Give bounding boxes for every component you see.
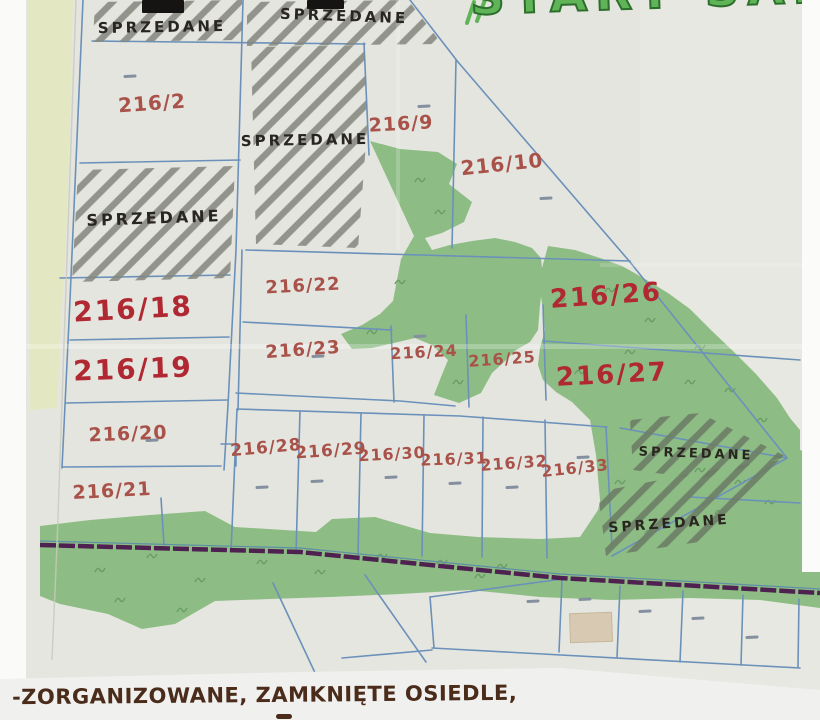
pencil-dash-mark [578,597,591,600]
pencil-dash-mark [413,334,426,337]
pencil-dash-mark [745,635,758,638]
parcel-label-216-31: 216/31 [420,448,488,469]
pencil-dash-mark [526,599,539,602]
parcel-label-216-29: 216/29 [295,439,368,464]
pencil-dash-mark [123,74,136,77]
parcel-label-216-23: 216/23 [265,337,341,363]
parcel-label-216-9: 216/9 [368,111,434,136]
pencil-dash-mark [255,485,268,488]
parcel-label-216-27: 216/27 [555,357,668,393]
sold-label: SPRZEDANE [638,445,753,464]
pencil-dash-mark [448,481,461,484]
pencil-dash-mark [310,479,323,482]
parcel-label-216-28: 216/28 [230,435,303,461]
parcel-label-216-25: 216/25 [468,347,537,371]
parcel-label-216-26: 216/26 [549,277,663,315]
parcel-label-216-18: 216/18 [72,289,193,328]
estate-title-text: STARY SAD [469,0,802,26]
parcel-label-216-30: 216/30 [358,443,426,466]
parcel-label-216-2: 216/2 [117,89,186,118]
sold-label: SPRZEDANE [98,17,227,37]
handwritten-annotations: 216/2216/9216/10216/18216/19216/20216/21… [0,0,820,720]
parcel-label-216-20: 216/20 [88,422,168,447]
parcel-label-216-33: 216/33 [540,455,609,481]
parcel-label-216-22: 216/22 [265,274,341,299]
parcel-label-216-24: 216/24 [390,341,458,364]
pencil-dash-mark [384,475,397,478]
estate-title: STARY SAD [452,0,802,27]
sold-label: SPRZEDANE [86,206,222,230]
pencil-dash-mark [539,196,552,199]
pencil-dash-mark [417,104,430,107]
pencil-dash-mark [691,616,704,619]
pencil-dash-mark [638,609,651,612]
note-second-line-tip [276,714,292,719]
sold-label: SPRZEDANE [241,130,370,150]
parcel-label-216-21: 216/21 [72,478,152,504]
parcel-label-216-19: 216/19 [73,350,194,387]
sold-label: SPRZEDANE [280,5,409,27]
note-text: -ZORGANIZOWANE, ZAMKNIĘTE OSIEDLE, [12,681,517,709]
sold-label: SPRZEDANE [608,512,730,536]
pencil-dash-mark [505,485,518,488]
plot-map-photo: 216/2216/9216/10216/18216/19216/20216/21… [0,0,820,720]
parcel-label-216-10: 216/10 [460,148,545,181]
parcel-label-216-32: 216/32 [480,451,549,475]
